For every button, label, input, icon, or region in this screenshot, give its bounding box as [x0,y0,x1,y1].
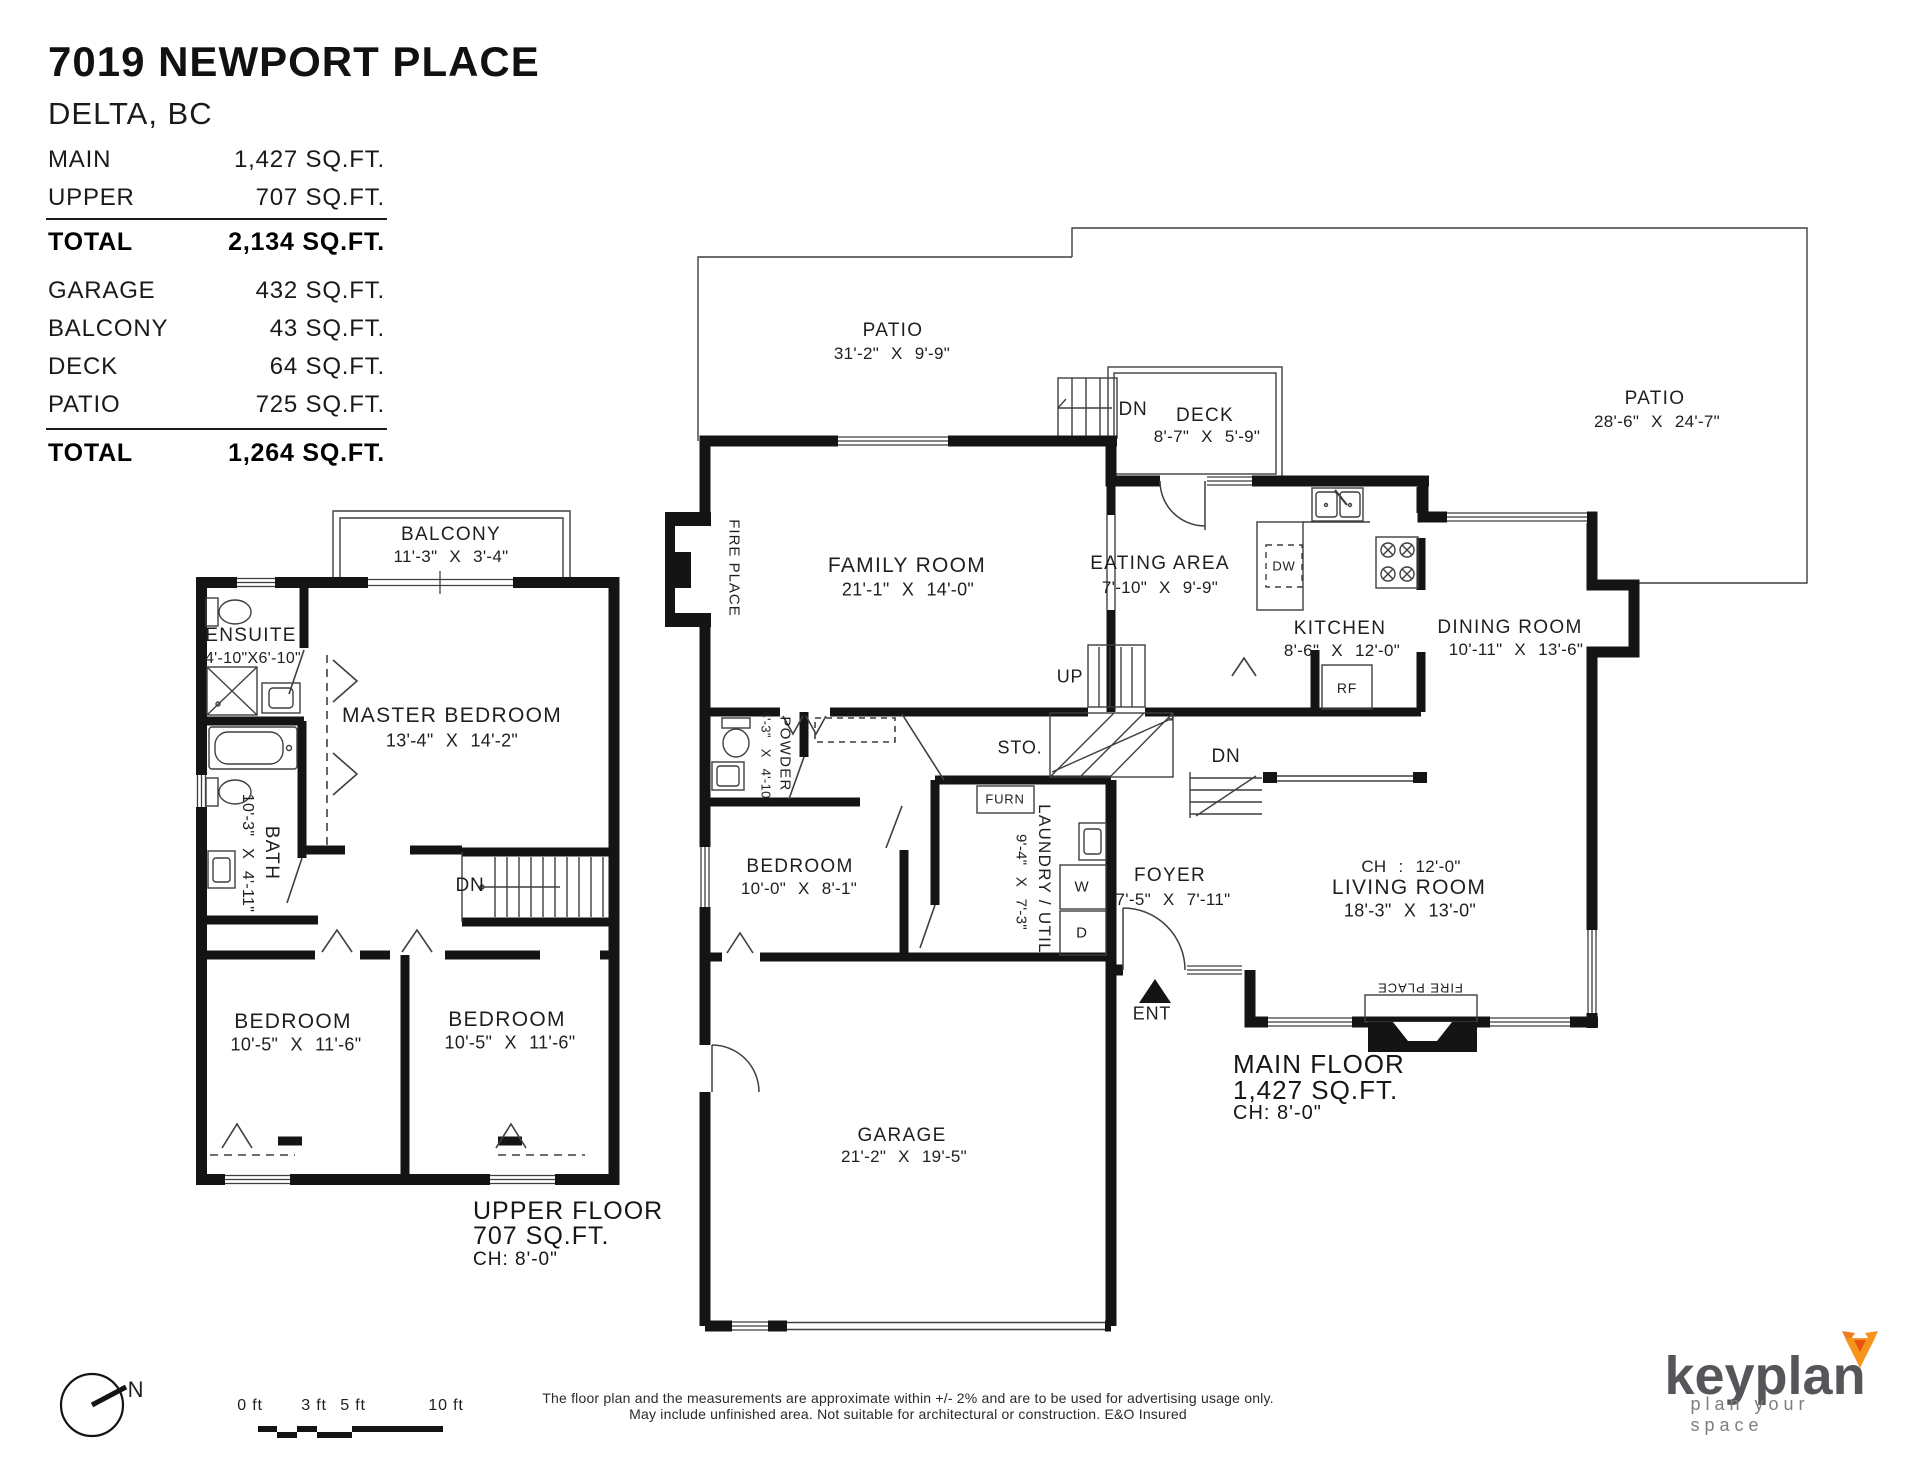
upper-floor-caption-ceiling: CH: 8'-0" [473,1249,558,1271]
room-dims-dining-room: 10'-11" X 13'-6" [1449,640,1583,660]
scale-tick-10ft: 10 ft [428,1397,463,1415]
room-label-ensuite: ENSUITE [205,625,296,647]
room-dims-ensuite: 4'-10"X6'-10" [205,650,301,668]
area-row-garage: GARAGE 432 SQ.FT. [48,277,385,305]
refrigerator-label: RF [1337,680,1357,696]
north-label: N [128,1377,145,1403]
room-label-powder: POWDER [777,716,794,791]
area-label: TOTAL [48,439,133,468]
dishwasher-label: DW [1272,559,1295,574]
room-dims-patio-right: 28'-6" X 24'-7" [1594,412,1720,432]
area-value: 1,264 SQ.FT. [228,439,385,468]
area-label: PATIO [48,391,120,419]
area-row-main: MAIN 1,427 SQ.FT. [48,146,385,174]
room-label-bedroom-1: BEDROOM [234,1010,352,1034]
area-row-total-living: TOTAL 2,134 SQ.FT. [48,228,385,257]
divider [46,428,387,430]
room-dims-bedroom-1: 10'-5" X 11'-6" [231,1035,362,1056]
area-label: DECK [48,353,118,381]
room-label-kitchen: KITCHEN [1294,618,1387,640]
room-label-patio-right: PATIO [1625,388,1686,410]
dryer-label: D [1076,925,1088,942]
area-value: 43 SQ.FT. [270,315,385,343]
area-label: GARAGE [48,277,156,305]
room-dims-living-room: 18'-3" X 13'-0" [1344,901,1476,922]
area-value: 2,134 SQ.FT. [228,228,385,257]
area-value: 707 SQ.FT. [256,184,385,212]
living-room-ceiling-height: CH : 12'-0" [1361,857,1460,877]
keyplan-tagline: plan your space [1691,1394,1844,1436]
disclaimer-line-2: May include unfinished area. Not suitabl… [629,1406,1187,1422]
area-label: BALCONY [48,315,168,343]
room-label-patio-top: PATIO [863,320,924,342]
room-dims-balcony: 11'-3" X 3'-4" [394,547,509,567]
room-label-bedroom-main: BEDROOM [746,856,853,878]
area-row-upper: UPPER 707 SQ.FT. [48,184,385,212]
area-label: MAIN [48,146,111,174]
area-row-patio: PATIO 725 SQ.FT. [48,391,385,419]
entrance-label: ENT [1133,1004,1171,1025]
room-dims-bedroom-main: 10'-0" X 8'-1" [741,879,857,899]
room-label-living-room: LIVING ROOM [1332,876,1486,900]
room-label-garage: GARAGE [857,1125,946,1147]
washer-label: W [1075,879,1090,896]
area-value: 725 SQ.FT. [256,391,385,419]
room-label-balcony: BALCONY [401,524,501,546]
room-dims-deck: 8'-7" X 5'-9" [1154,427,1260,447]
room-dims-family-room: 21'-1" X 14'-0" [842,580,974,601]
room-label-bedroom-2: BEDROOM [448,1008,566,1032]
storage-label: STO. [998,738,1043,759]
page-title: 7019 NEWPORT PLACE [48,38,540,86]
room-label-dining-room: DINING ROOM [1437,617,1582,639]
room-dims-patio-top: 31'-2" X 9'-9" [834,344,950,364]
area-row-total-outdoor: TOTAL 1,264 SQ.FT. [48,439,385,468]
furnace-label: FURN [985,792,1024,807]
stairs-up-label: UP [1057,667,1084,688]
area-value: 432 SQ.FT. [256,277,385,305]
area-row-balcony: BALCONY 43 SQ.FT. [48,315,385,343]
north-compass-icon [61,1374,126,1436]
area-value: 64 SQ.FT. [270,353,385,381]
room-dims-kitchen: 8'-6" X 12'-0" [1284,641,1400,661]
scale-tick-5ft: 5 ft [340,1397,365,1415]
room-dims-foyer: 7'-5" X 7'-11" [1116,890,1231,910]
room-dims-bedroom-2: 10'-5" X 11'-6" [445,1033,576,1054]
disclaimer-line-1: The floor plan and the measurements are … [542,1390,1274,1406]
keyplan-fox-icon [1841,1330,1879,1370]
area-label: TOTAL [48,228,133,257]
area-row-deck: DECK 64 SQ.FT. [48,353,385,381]
room-label-family-room: FAMILY ROOM [828,554,986,578]
area-value: 1,427 SQ.FT. [234,146,385,174]
floorplan-graphics [0,0,1920,1484]
stairs-down-label-upper: DN [455,875,484,897]
room-label-bath: BATH [260,826,282,880]
page-subtitle: DELTA, BC [48,96,213,132]
fireplace-label-living: FIRE PLACE [1377,981,1463,996]
stairs-down-label-deck: DN [1118,399,1147,421]
stairs-down-label-foyer: DN [1211,746,1240,768]
room-dims-eating-area: 7'-10" X 9'-9" [1102,578,1218,598]
room-label-foyer: FOYER [1134,865,1206,887]
room-label-laundry: LAUNDRY / UTIL. [1034,804,1054,960]
room-dims-laundry: 9'-4" X 7'-3" [1013,834,1030,930]
scale-tick-0ft: 0 ft [237,1397,262,1415]
room-dims-garage: 21'-2" X 19'-5" [841,1147,967,1167]
room-dims-bath: 10'-3" X 4'-11" [238,794,256,912]
scale-tick-3ft: 3 ft [301,1397,326,1415]
room-label-eating-area: EATING AREA [1090,553,1230,575]
main-floor-caption-ceiling: CH: 8'-0" [1233,1102,1322,1125]
area-label: UPPER [48,184,135,212]
room-label-deck: DECK [1176,405,1234,427]
floorplan-page: 7019 NEWPORT PLACE DELTA, BC MAIN 1,427 … [0,0,1920,1484]
room-label-master-bedroom: MASTER BEDROOM [342,704,562,728]
upper-floor-caption-area: 707 SQ.FT. [473,1222,609,1251]
divider [46,218,387,220]
room-dims-powder: 4'-3" X 4'-10" [759,710,774,803]
room-dims-master-bedroom: 13'-4" X 14'-2" [386,731,518,752]
fireplace-label-family: FIRE PLACE [726,519,743,617]
